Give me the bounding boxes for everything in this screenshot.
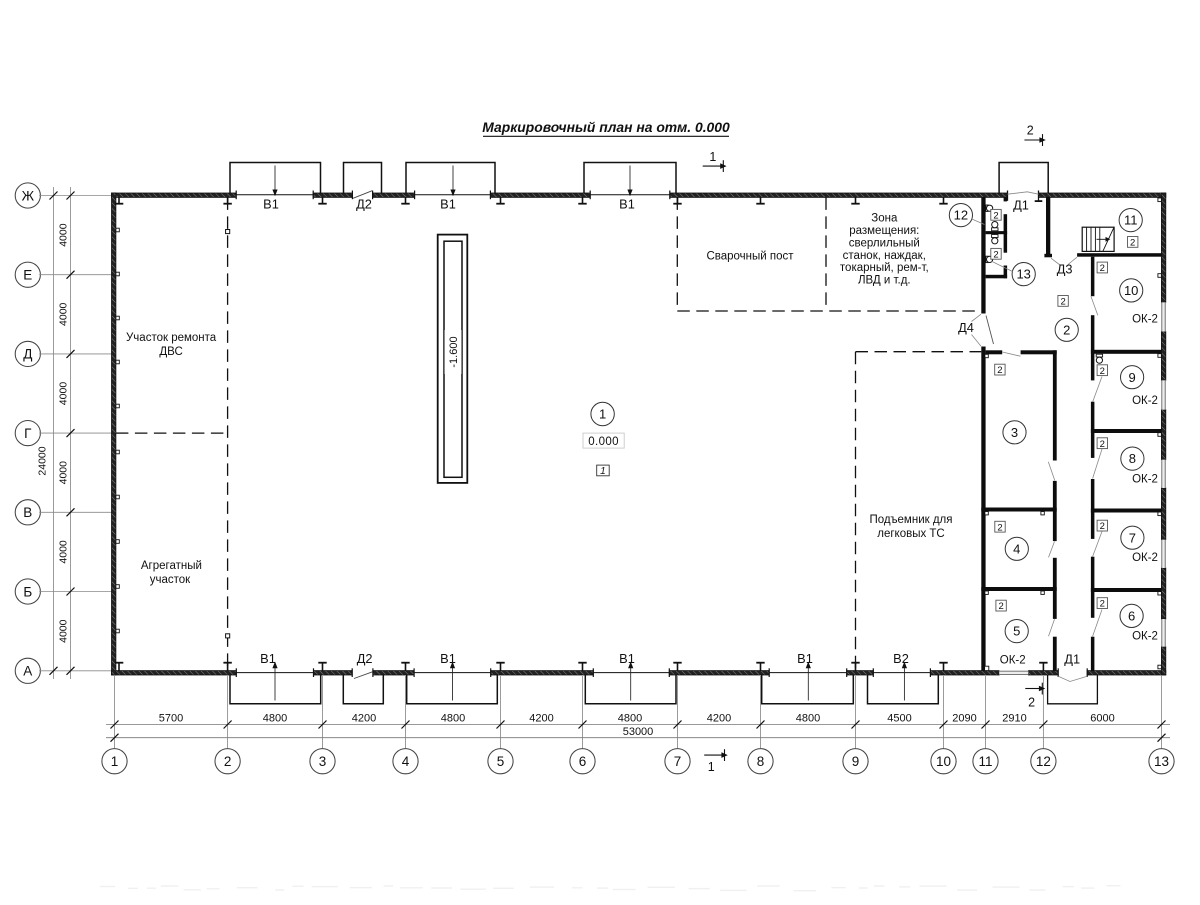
svg-text:4000: 4000 [58, 302, 70, 326]
svg-text:3: 3 [1011, 425, 1018, 440]
svg-text:В1: В1 [263, 197, 279, 212]
svg-text:2: 2 [1063, 322, 1070, 337]
svg-text:ОК-2: ОК-2 [1132, 395, 1158, 407]
svg-text:2: 2 [1100, 366, 1105, 377]
svg-text:ОК-2: ОК-2 [1132, 631, 1158, 643]
svg-text:Д1: Д1 [1064, 652, 1080, 667]
svg-text:1: 1 [708, 760, 715, 774]
svg-text:размещения:: размещения: [849, 225, 919, 237]
svg-text:легковых ТС: легковых ТС [877, 528, 945, 540]
svg-text:12: 12 [954, 208, 968, 223]
svg-text:9: 9 [1128, 370, 1135, 385]
svg-text:11: 11 [1124, 213, 1138, 228]
svg-text:2: 2 [1060, 297, 1065, 308]
svg-text:Д4: Д4 [958, 320, 974, 335]
svg-text:токарный, рем-т,: токарный, рем-т, [840, 262, 929, 274]
svg-text:13: 13 [1016, 267, 1030, 282]
svg-text:2: 2 [1130, 238, 1135, 249]
svg-text:6000: 6000 [1090, 712, 1114, 724]
svg-text:станок, наждак,: станок, наждак, [843, 250, 926, 262]
svg-text:2: 2 [1100, 439, 1105, 450]
svg-text:8: 8 [1129, 451, 1136, 466]
svg-text:5700: 5700 [159, 712, 183, 724]
svg-text:Агрегатный: Агрегатный [141, 560, 202, 572]
svg-text:участок: участок [150, 574, 191, 586]
svg-text:4800: 4800 [263, 712, 287, 724]
svg-text:В1: В1 [440, 651, 456, 666]
svg-text:Участок ремонта: Участок ремонта [126, 332, 217, 344]
svg-text:2: 2 [1100, 599, 1105, 610]
svg-text:0.000: 0.000 [588, 436, 619, 448]
svg-text:2: 2 [993, 210, 998, 221]
svg-text:11: 11 [978, 754, 992, 769]
svg-text:6: 6 [1128, 609, 1135, 624]
svg-text:Д2: Д2 [356, 197, 372, 212]
svg-text:5: 5 [497, 754, 505, 769]
svg-text:10: 10 [1124, 283, 1138, 298]
svg-text:13: 13 [1154, 754, 1169, 769]
svg-text:53000: 53000 [623, 726, 654, 738]
svg-text:1: 1 [600, 466, 606, 477]
svg-text:2910: 2910 [1002, 712, 1026, 724]
svg-text:Б: Б [23, 584, 32, 599]
svg-text:сверлильный: сверлильный [849, 237, 920, 249]
svg-text:1: 1 [111, 754, 119, 769]
svg-text:9: 9 [852, 754, 860, 769]
svg-text:Маркировочный план на отм. 0.0: Маркировочный план на отм. 0.000 [482, 119, 730, 135]
svg-text:4000: 4000 [58, 540, 70, 564]
svg-text:4800: 4800 [441, 712, 465, 724]
svg-text:8: 8 [757, 754, 765, 769]
svg-text:ДВС: ДВС [159, 346, 182, 358]
svg-text:ОК-2: ОК-2 [1000, 654, 1026, 666]
svg-text:Г: Г [24, 426, 32, 441]
svg-text:2: 2 [224, 754, 232, 769]
svg-text:2: 2 [997, 522, 1002, 533]
svg-text:4000: 4000 [58, 619, 70, 643]
svg-text:24000: 24000 [37, 446, 49, 475]
svg-text:4: 4 [1013, 541, 1020, 556]
svg-text:2090: 2090 [952, 712, 976, 724]
svg-text:7: 7 [674, 754, 682, 769]
svg-text:7: 7 [1129, 530, 1136, 545]
svg-text:В2: В2 [893, 651, 909, 666]
svg-text:А: А [23, 664, 32, 679]
svg-text:4200: 4200 [707, 712, 731, 724]
svg-text:4200: 4200 [529, 712, 553, 724]
svg-text:В1: В1 [619, 651, 635, 666]
svg-text:2: 2 [997, 365, 1002, 376]
svg-text:Д2: Д2 [357, 651, 373, 666]
svg-text:ЛВД и т.д.: ЛВД и т.д. [858, 274, 911, 286]
svg-text:Сварочный пост: Сварочный пост [706, 251, 794, 263]
svg-text:Д: Д [23, 347, 32, 362]
svg-text:4: 4 [402, 754, 410, 769]
svg-text:Д1: Д1 [1013, 198, 1029, 213]
svg-text:4500: 4500 [887, 712, 911, 724]
svg-text:4000: 4000 [58, 461, 70, 485]
svg-text:2: 2 [1100, 521, 1105, 532]
svg-text:4200: 4200 [352, 712, 376, 724]
svg-text:4000: 4000 [58, 223, 70, 247]
svg-text:В: В [23, 505, 32, 520]
svg-text:2: 2 [1100, 263, 1105, 274]
svg-text:-1.600: -1.600 [448, 336, 460, 367]
svg-text:Ж: Ж [22, 188, 35, 203]
svg-text:5: 5 [1013, 624, 1020, 639]
svg-text:12: 12 [1036, 754, 1051, 769]
svg-text:Подъемник для: Подъемник для [869, 514, 952, 526]
svg-text:2: 2 [998, 601, 1003, 612]
svg-text:В1: В1 [440, 197, 456, 212]
svg-text:1: 1 [599, 407, 606, 422]
svg-text:В1: В1 [797, 651, 813, 666]
svg-text:4000: 4000 [58, 382, 70, 406]
svg-text:Зона: Зона [871, 213, 898, 225]
svg-text:ОК-2: ОК-2 [1132, 474, 1158, 486]
svg-text:10: 10 [936, 754, 951, 769]
svg-text:2: 2 [1028, 695, 1035, 709]
svg-text:6: 6 [579, 754, 587, 769]
svg-text:В1: В1 [260, 651, 276, 666]
svg-text:В1: В1 [619, 197, 635, 212]
svg-text:2: 2 [1027, 124, 1034, 138]
svg-text:2: 2 [993, 249, 998, 260]
svg-text:Д3: Д3 [1057, 262, 1073, 277]
svg-text:1: 1 [709, 150, 716, 164]
svg-text:Е: Е [23, 268, 32, 283]
svg-text:4800: 4800 [796, 712, 820, 724]
svg-text:4800: 4800 [618, 712, 642, 724]
svg-text:ОК-2: ОК-2 [1132, 314, 1158, 326]
svg-text:ОК-2: ОК-2 [1132, 552, 1158, 564]
svg-text:3: 3 [319, 754, 327, 769]
